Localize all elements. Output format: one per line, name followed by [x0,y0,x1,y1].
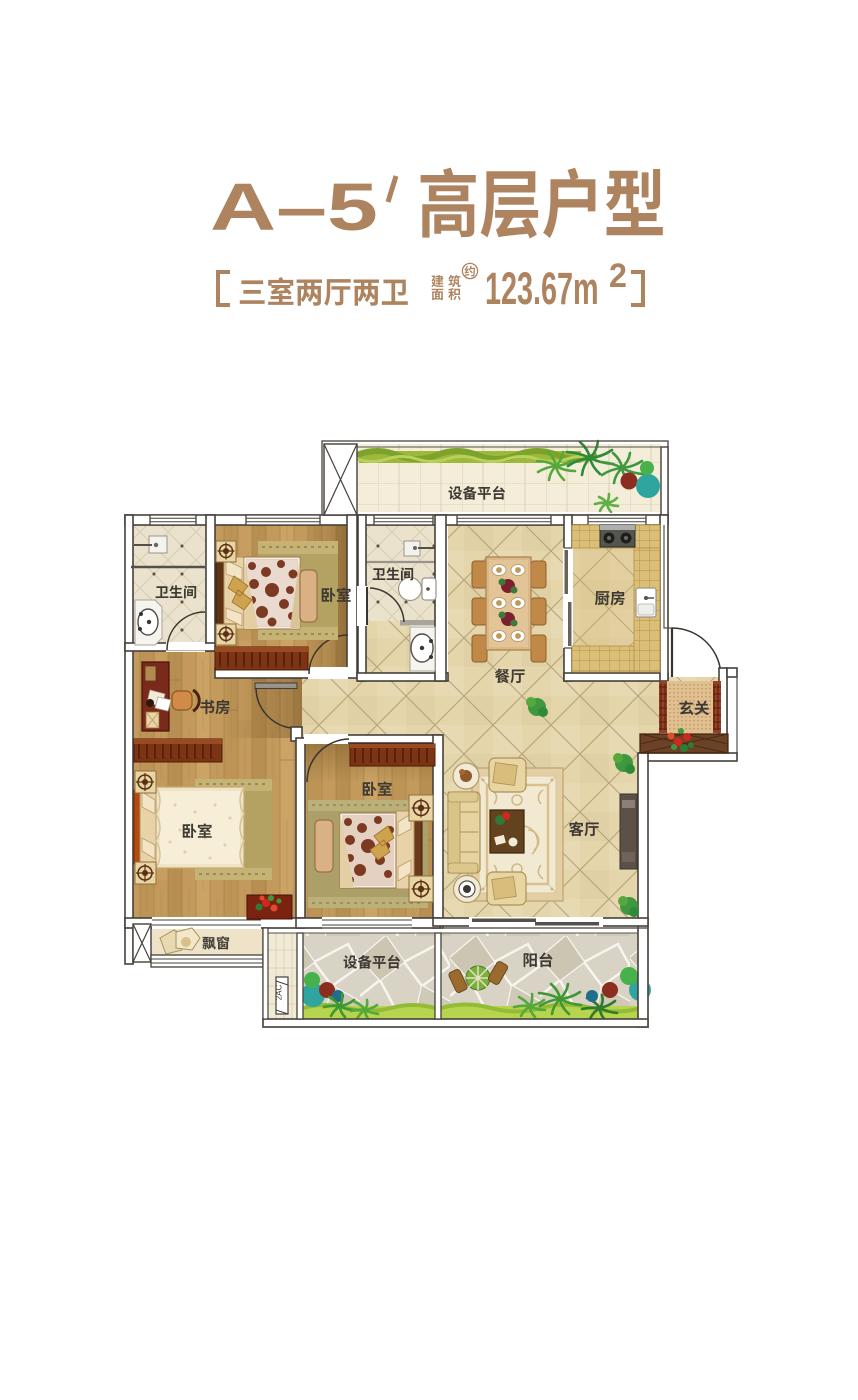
svg-text:2: 2 [609,257,627,295]
svg-text:2AC: 2AC [275,984,284,1000]
svg-text:123.67m: 123.67m [485,265,599,315]
svg-text:A–5: A–5 [210,170,378,245]
